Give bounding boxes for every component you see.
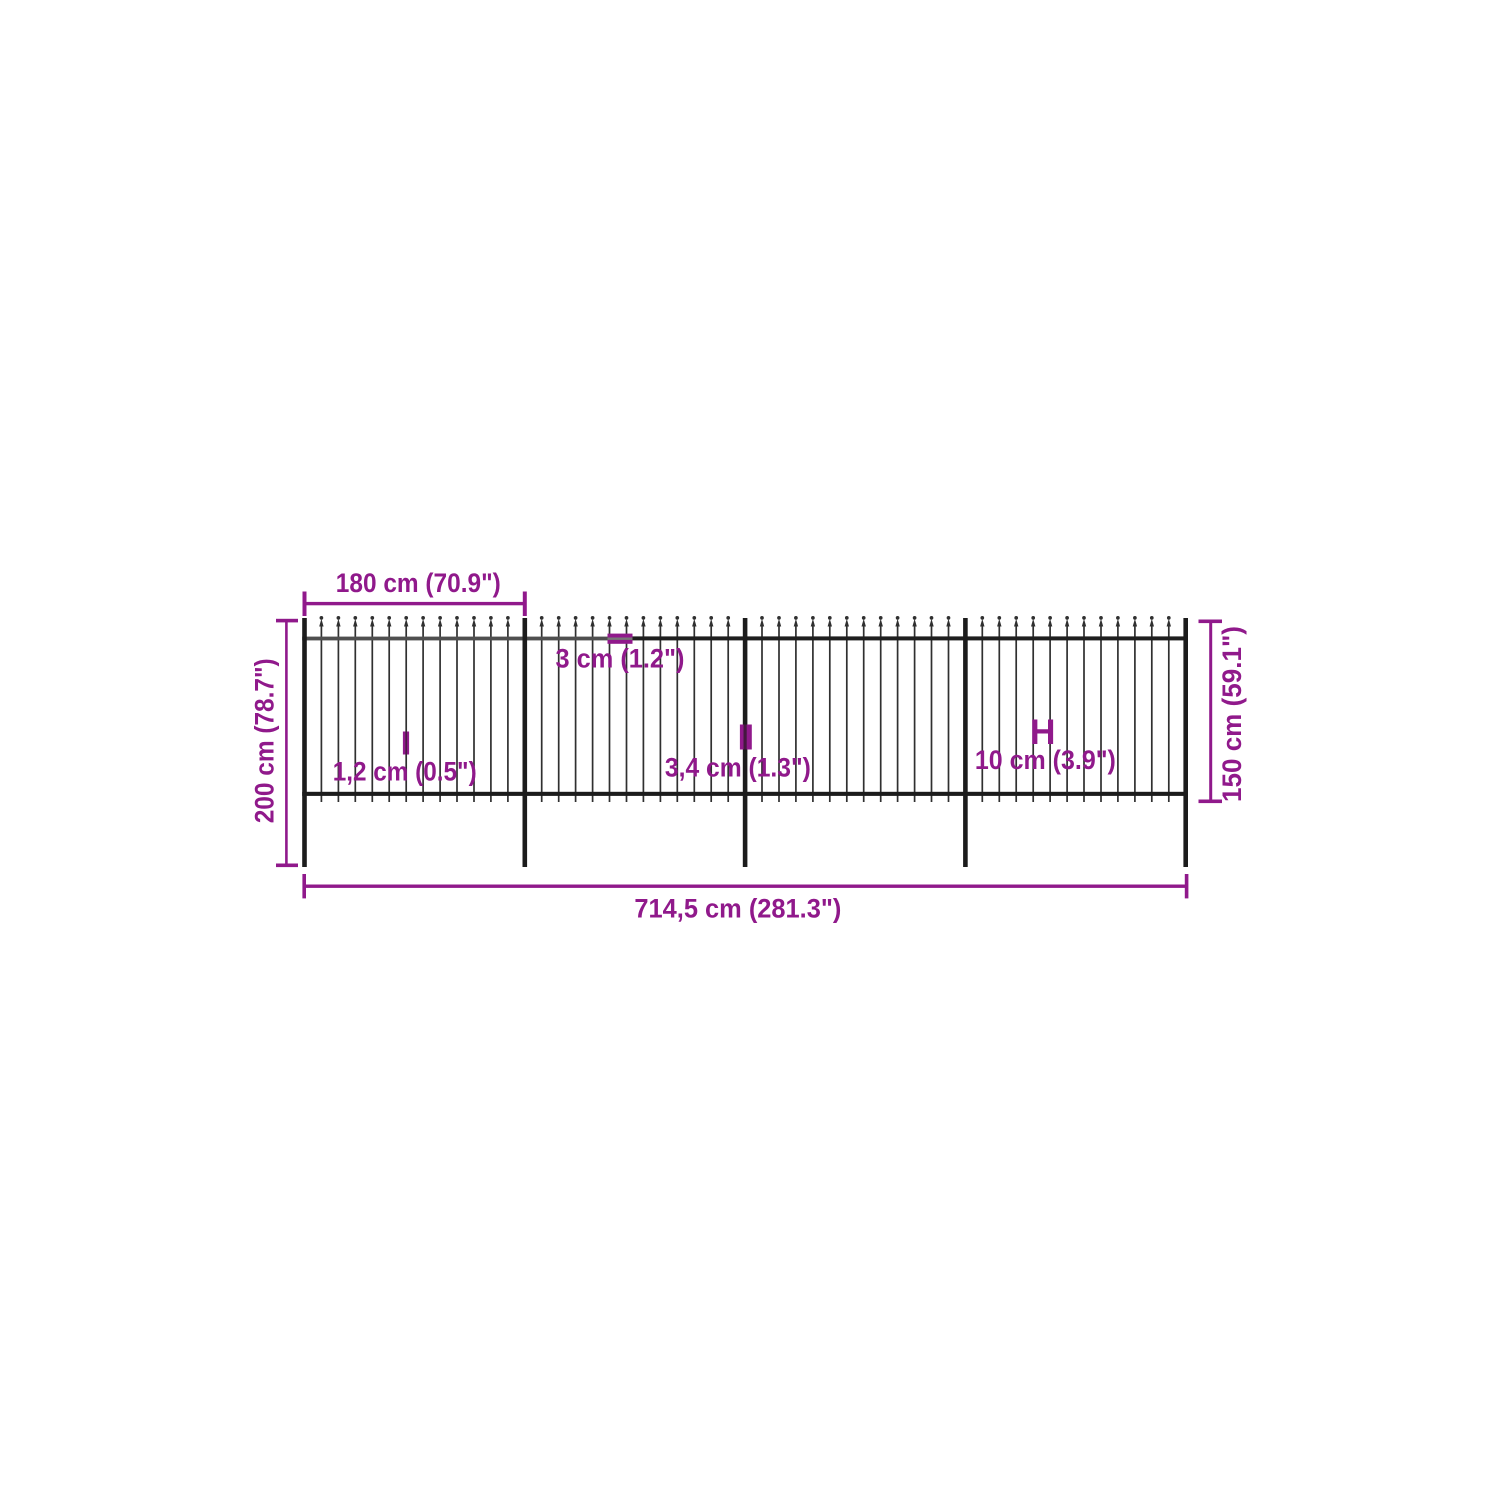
svg-text:714,5 cm (281.3"): 714,5 cm (281.3") <box>634 894 841 924</box>
svg-text:3 cm (1.2"): 3 cm (1.2") <box>556 644 685 674</box>
svg-text:3,4 cm (1.3"): 3,4 cm (1.3") <box>665 753 811 783</box>
svg-text:10 cm (3.9"): 10 cm (3.9") <box>975 745 1116 775</box>
svg-text:150 cm (59.1"): 150 cm (59.1") <box>1217 626 1247 802</box>
svg-text:200 cm (78.7"): 200 cm (78.7") <box>250 658 280 823</box>
svg-text:180 cm (70.9"): 180 cm (70.9") <box>336 568 501 598</box>
svg-text:1,2 cm (0.5"): 1,2 cm (0.5") <box>333 757 477 787</box>
